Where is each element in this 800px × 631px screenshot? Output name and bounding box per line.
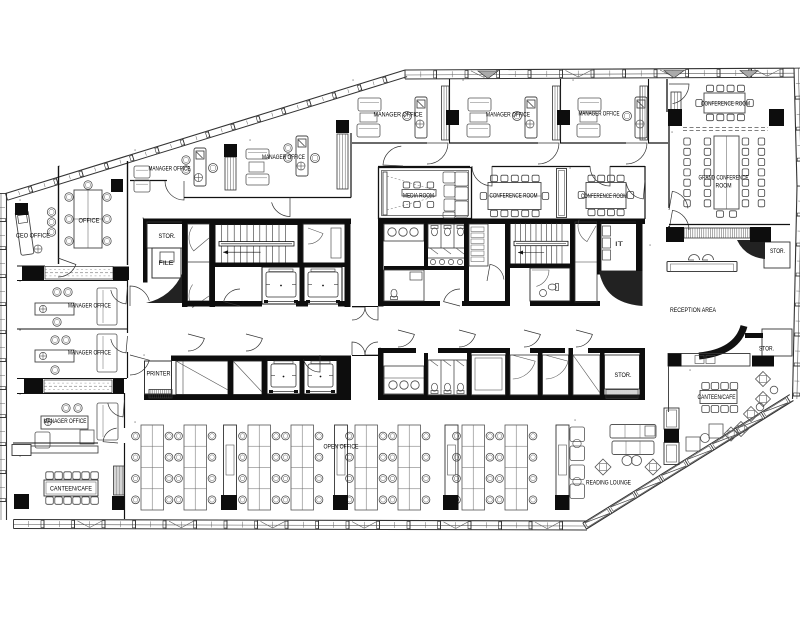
- svg-text:CANTEEN/CAFE: CANTEEN/CAFE: [698, 394, 736, 401]
- svg-text:MANAGER OFFICE: MANAGER OFFICE: [68, 303, 111, 310]
- svg-text:READING LOUNGE: READING LOUNGE: [586, 480, 631, 487]
- svg-text:GRAND CONFERENCE: GRAND CONFERENCE: [699, 175, 749, 182]
- svg-text:STOR.: STOR.: [759, 346, 774, 353]
- svg-text:STOR.: STOR.: [159, 233, 176, 240]
- svg-text:RECEPTION AREA: RECEPTION AREA: [670, 307, 717, 314]
- svg-text:MANAGER OFFICE: MANAGER OFFICE: [68, 350, 111, 357]
- svg-text:MANAGER OFFICE: MANAGER OFFICE: [579, 111, 620, 118]
- svg-text:PRINTER: PRINTER: [147, 371, 171, 378]
- svg-text:CANTEEN/CAFE: CANTEEN/CAFE: [50, 486, 92, 493]
- svg-text:MANAGER OFFICE: MANAGER OFFICE: [44, 418, 87, 425]
- svg-text:MANAGER OFFICE: MANAGER OFFICE: [374, 112, 423, 119]
- svg-text:MANAGER OFFICE: MANAGER OFFICE: [486, 112, 530, 119]
- svg-text:CONFERENCE ROOM: CONFERENCE ROOM: [701, 101, 750, 108]
- svg-text:MEDIA ROOM: MEDIA ROOM: [403, 193, 434, 200]
- svg-text:MANAGER OFFICE: MANAGER OFFICE: [262, 154, 305, 161]
- svg-text:OFFICE: OFFICE: [79, 218, 101, 225]
- svg-text:CEO OFFICE: CEO OFFICE: [16, 233, 50, 240]
- svg-text:CONFERENCE ROOM: CONFERENCE ROOM: [581, 193, 627, 200]
- svg-text:FILE: FILE: [159, 260, 174, 267]
- svg-text:STOR.: STOR.: [615, 372, 632, 379]
- svg-text:MANAGER OFFICE: MANAGER OFFICE: [149, 166, 191, 173]
- svg-text:OPEN OFFICE: OPEN OFFICE: [324, 444, 359, 451]
- svg-text:CONFERENCE ROOM: CONFERENCE ROOM: [490, 193, 538, 200]
- svg-text:IT: IT: [615, 241, 623, 248]
- svg-text:ROOM: ROOM: [716, 183, 732, 190]
- svg-text:STOR.: STOR.: [770, 249, 785, 255]
